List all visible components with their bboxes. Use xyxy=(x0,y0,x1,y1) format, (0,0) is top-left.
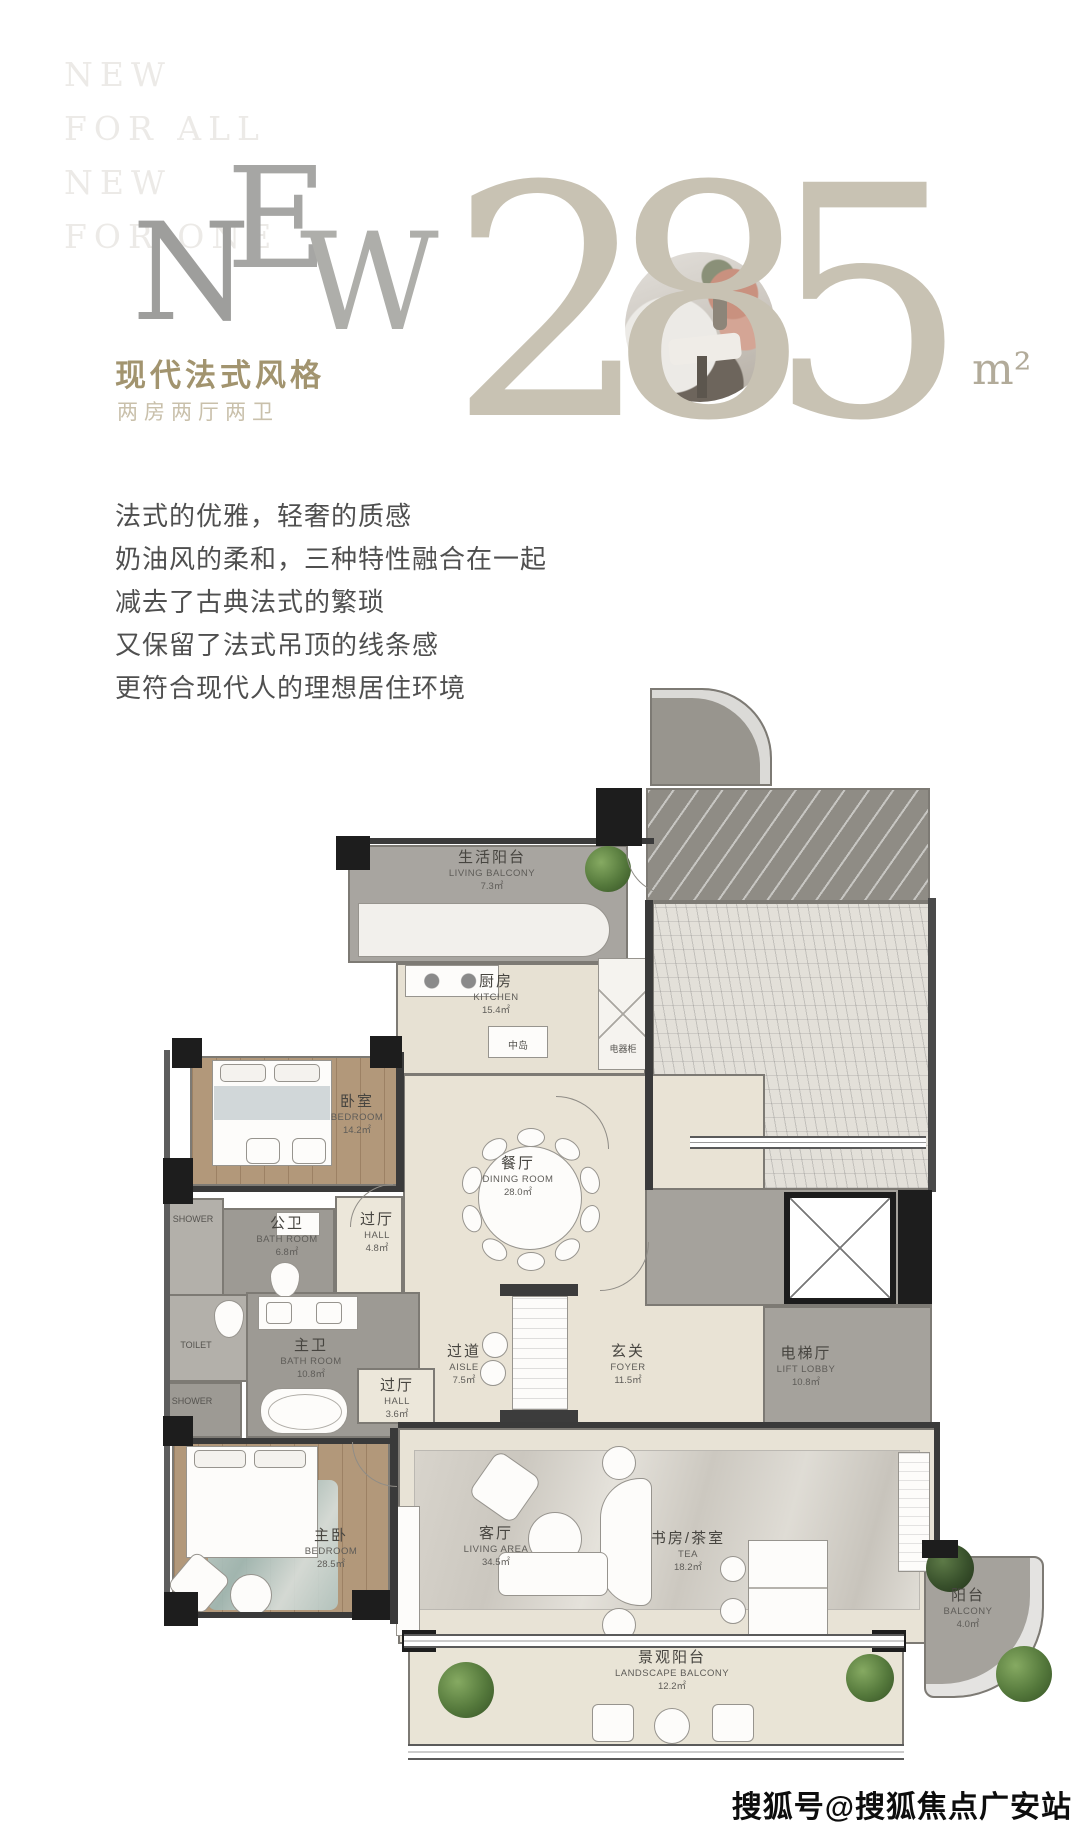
column-block xyxy=(922,1540,958,1558)
living-balcony-window xyxy=(404,1634,904,1648)
plant-balcony-bottom xyxy=(996,1646,1052,1702)
bench-seat xyxy=(292,1138,326,1164)
room-cn: 餐厅 xyxy=(483,1156,554,1171)
room-area: 6.8㎡ xyxy=(256,1248,317,1258)
foyer-console xyxy=(512,1296,568,1410)
pillow xyxy=(254,1450,306,1468)
balcony-window-band xyxy=(408,1744,904,1760)
intro-line-2: 奶油风的柔和，三种特性融合在一起 xyxy=(115,539,675,582)
plant-living-balcony xyxy=(585,846,631,892)
tv-cabinet xyxy=(396,1506,420,1636)
wall-living-top xyxy=(398,1422,940,1428)
area-unit: m² xyxy=(972,344,1031,395)
room-area: 3.6㎡ xyxy=(380,1410,414,1420)
room-cn: 书房/茶室 xyxy=(651,1531,725,1546)
room-area: 10.8㎡ xyxy=(280,1370,341,1380)
intro-line-1: 法式的优雅，轻奢的质感 xyxy=(115,496,675,539)
bed-blanket xyxy=(214,1086,330,1120)
room-label-aisle: 过道 AISLE 7.5㎡ xyxy=(447,1344,481,1385)
room-en: BEDROOM xyxy=(331,1113,384,1123)
room-en: AISLE xyxy=(447,1363,481,1373)
room-area: 7.3㎡ xyxy=(449,882,535,892)
room-en: LIVING AREA xyxy=(464,1545,529,1555)
room-area: 12.2㎡ xyxy=(615,1682,729,1692)
elevator-shaft xyxy=(784,1192,896,1304)
study-desk xyxy=(748,1540,828,1636)
room-en: LIFT LOBBY xyxy=(777,1365,836,1375)
room-area: 4.8㎡ xyxy=(360,1244,394,1254)
intro-line-4: 又保留了法式吊顶的线条感 xyxy=(115,625,675,668)
column-block xyxy=(163,1158,193,1204)
room-label-kitchen: 厨房 KITCHEN 15.4㎡ xyxy=(473,974,518,1015)
intro-line-5: 更符合现代人的理想居住环境 xyxy=(115,668,675,711)
room-area: 14.2㎡ xyxy=(331,1126,384,1136)
room-label-foyer: 玄关 FOYER 11.5㎡ xyxy=(610,1344,645,1385)
pillow xyxy=(194,1450,246,1468)
patio-chair xyxy=(592,1704,634,1742)
room-label-landscape-balcony: 景观阳台 LANDSCAPE BALCONY 12.2㎡ xyxy=(615,1650,729,1691)
room-area: 15.4㎡ xyxy=(473,1006,518,1016)
room-en: DINING ROOM xyxy=(483,1175,554,1185)
room-label-bedroom: 卧室 BEDROOM 14.2㎡ xyxy=(331,1094,384,1135)
room-cn: 客厅 xyxy=(464,1526,529,1541)
label-toilet: TOILET xyxy=(166,1340,226,1350)
room-area: 28.5㎡ xyxy=(305,1560,358,1570)
pillow xyxy=(274,1064,320,1082)
marble-slab xyxy=(646,788,930,902)
wall-bedroom-right xyxy=(396,1052,404,1188)
room-area: 7.5㎡ xyxy=(447,1376,481,1386)
room-label-balcony: 阳台 BALCONY 4.0㎡ xyxy=(944,1588,993,1629)
stool xyxy=(482,1332,508,1358)
column-block xyxy=(336,836,370,870)
wall-study-right xyxy=(934,1428,940,1558)
label-shower-1: SHOWER xyxy=(164,1214,222,1224)
room-cn: 过厅 xyxy=(380,1378,414,1393)
wall-stub xyxy=(500,1284,578,1296)
patio-chair xyxy=(712,1704,754,1742)
pillow xyxy=(220,1064,266,1082)
wall-left-outer xyxy=(164,1050,170,1606)
room-area: 11.5㎡ xyxy=(610,1376,645,1386)
patio-table xyxy=(654,1708,690,1744)
room-area: 28.0㎡ xyxy=(483,1188,554,1198)
page-title: 现代法式风格 xyxy=(115,350,325,395)
column-block xyxy=(163,1416,193,1446)
room-label-master-bedroom: 主卧 BEDROOM 28.5㎡ xyxy=(305,1528,358,1569)
label-island: 中岛 xyxy=(492,1037,544,1052)
room-label-hall-lower: 过厅 HALL 3.6㎡ xyxy=(380,1378,414,1419)
room-cn: 主卧 xyxy=(305,1528,358,1543)
floor-shower-1 xyxy=(164,1198,224,1296)
bench-seat xyxy=(246,1138,280,1164)
room-en: BALCONY xyxy=(944,1607,993,1617)
sink xyxy=(316,1302,342,1324)
label-appliance-cabinet: 电器柜 xyxy=(596,1042,650,1055)
sofa-end-table xyxy=(602,1446,636,1480)
big-letter-w: W xyxy=(300,215,439,350)
dining-table-group xyxy=(460,1128,600,1268)
room-label-study: 书房/茶室 TEA 18.2㎡ xyxy=(651,1531,725,1572)
room-en: HALL xyxy=(360,1231,394,1241)
room-cn: 主卫 xyxy=(280,1338,341,1353)
room-label-public-bath: 公卫 BATH ROOM 6.8㎡ xyxy=(256,1216,317,1257)
room-area: 10.8㎡ xyxy=(777,1378,836,1388)
room-cn: 玄关 xyxy=(610,1344,645,1359)
room-label-master-bath: 主卫 BATH ROOM 10.8㎡ xyxy=(280,1338,341,1379)
dining-chair xyxy=(517,1252,545,1271)
room-cn: 公卫 xyxy=(256,1216,317,1231)
room-en: KITCHEN xyxy=(473,993,518,1003)
room-cn: 阳台 xyxy=(944,1588,993,1603)
dining-chair xyxy=(517,1128,545,1147)
room-en: BATH ROOM xyxy=(280,1357,341,1367)
room-en: FOYER xyxy=(610,1363,645,1373)
column-block xyxy=(172,1038,202,1068)
souhu-watermark: 搜狐号@搜狐焦点广安站 xyxy=(700,1782,1072,1825)
room-cn: 过道 xyxy=(447,1344,481,1359)
flyer-page: NEW FOR ALL NEW FOR ONE N E W 现代法式风格 两房两… xyxy=(0,0,1080,1825)
room-cn: 电梯厅 xyxy=(777,1346,836,1361)
room-area: 4.0㎡ xyxy=(944,1620,993,1630)
room-cn: 过厅 xyxy=(360,1212,394,1227)
ottoman-round xyxy=(230,1574,272,1616)
intro-line-3: 减去了古典法式的繁琐 xyxy=(115,582,675,625)
room-en: LIVING BALCONY xyxy=(449,869,535,879)
room-label-dining: 餐厅 DINING ROOM 28.0㎡ xyxy=(483,1156,554,1197)
bathtub-inner xyxy=(268,1394,342,1430)
column-block xyxy=(352,1590,390,1620)
wall-column-block xyxy=(596,788,642,846)
room-label-living-balcony: 生活阳台 LIVING BALCONY 7.3㎡ xyxy=(449,850,535,891)
room-cn: 卧室 xyxy=(331,1094,384,1109)
stool xyxy=(480,1360,506,1386)
balcony-counter xyxy=(358,903,610,957)
room-en: LANDSCAPE BALCONY xyxy=(615,1669,729,1679)
room-cn: 生活阳台 xyxy=(449,850,535,865)
wall-stub xyxy=(500,1410,578,1422)
room-cn: 景观阳台 xyxy=(615,1650,729,1665)
wall-right-outer xyxy=(928,898,936,1192)
facade-curve xyxy=(650,688,772,786)
column-block xyxy=(370,1036,402,1068)
door-arc-balcony xyxy=(626,850,671,895)
plant-balcony-left xyxy=(438,1662,494,1718)
sink xyxy=(266,1302,292,1324)
room-en: BEDROOM xyxy=(305,1547,358,1557)
page-subtitle: 两房两厅两卫 xyxy=(117,396,279,426)
room-en: HALL xyxy=(380,1397,414,1407)
desk-chair xyxy=(720,1598,746,1624)
room-area: 18.2㎡ xyxy=(651,1563,725,1573)
room-label-hall-upper: 过厅 HALL 4.8㎡ xyxy=(360,1212,394,1253)
room-cn: 厨房 xyxy=(473,974,518,989)
room-label-lift-lobby: 电梯厅 LIFT LOBBY 10.8㎡ xyxy=(777,1346,836,1387)
room-en: TEA xyxy=(651,1550,725,1560)
stair-landing-line xyxy=(690,1136,926,1149)
plant-balcony-right xyxy=(846,1654,894,1702)
label-shower-2: SHOWER xyxy=(162,1396,222,1406)
area-number: 285 xyxy=(448,145,924,465)
column-block xyxy=(164,1592,198,1626)
ghost-line-1: NEW xyxy=(64,58,172,91)
room-label-living-area: 客厅 LIVING AREA 34.5㎡ xyxy=(464,1526,529,1567)
column-block xyxy=(898,1190,932,1304)
room-area: 34.5㎡ xyxy=(464,1558,529,1568)
room-en: BATH ROOM xyxy=(256,1235,317,1245)
